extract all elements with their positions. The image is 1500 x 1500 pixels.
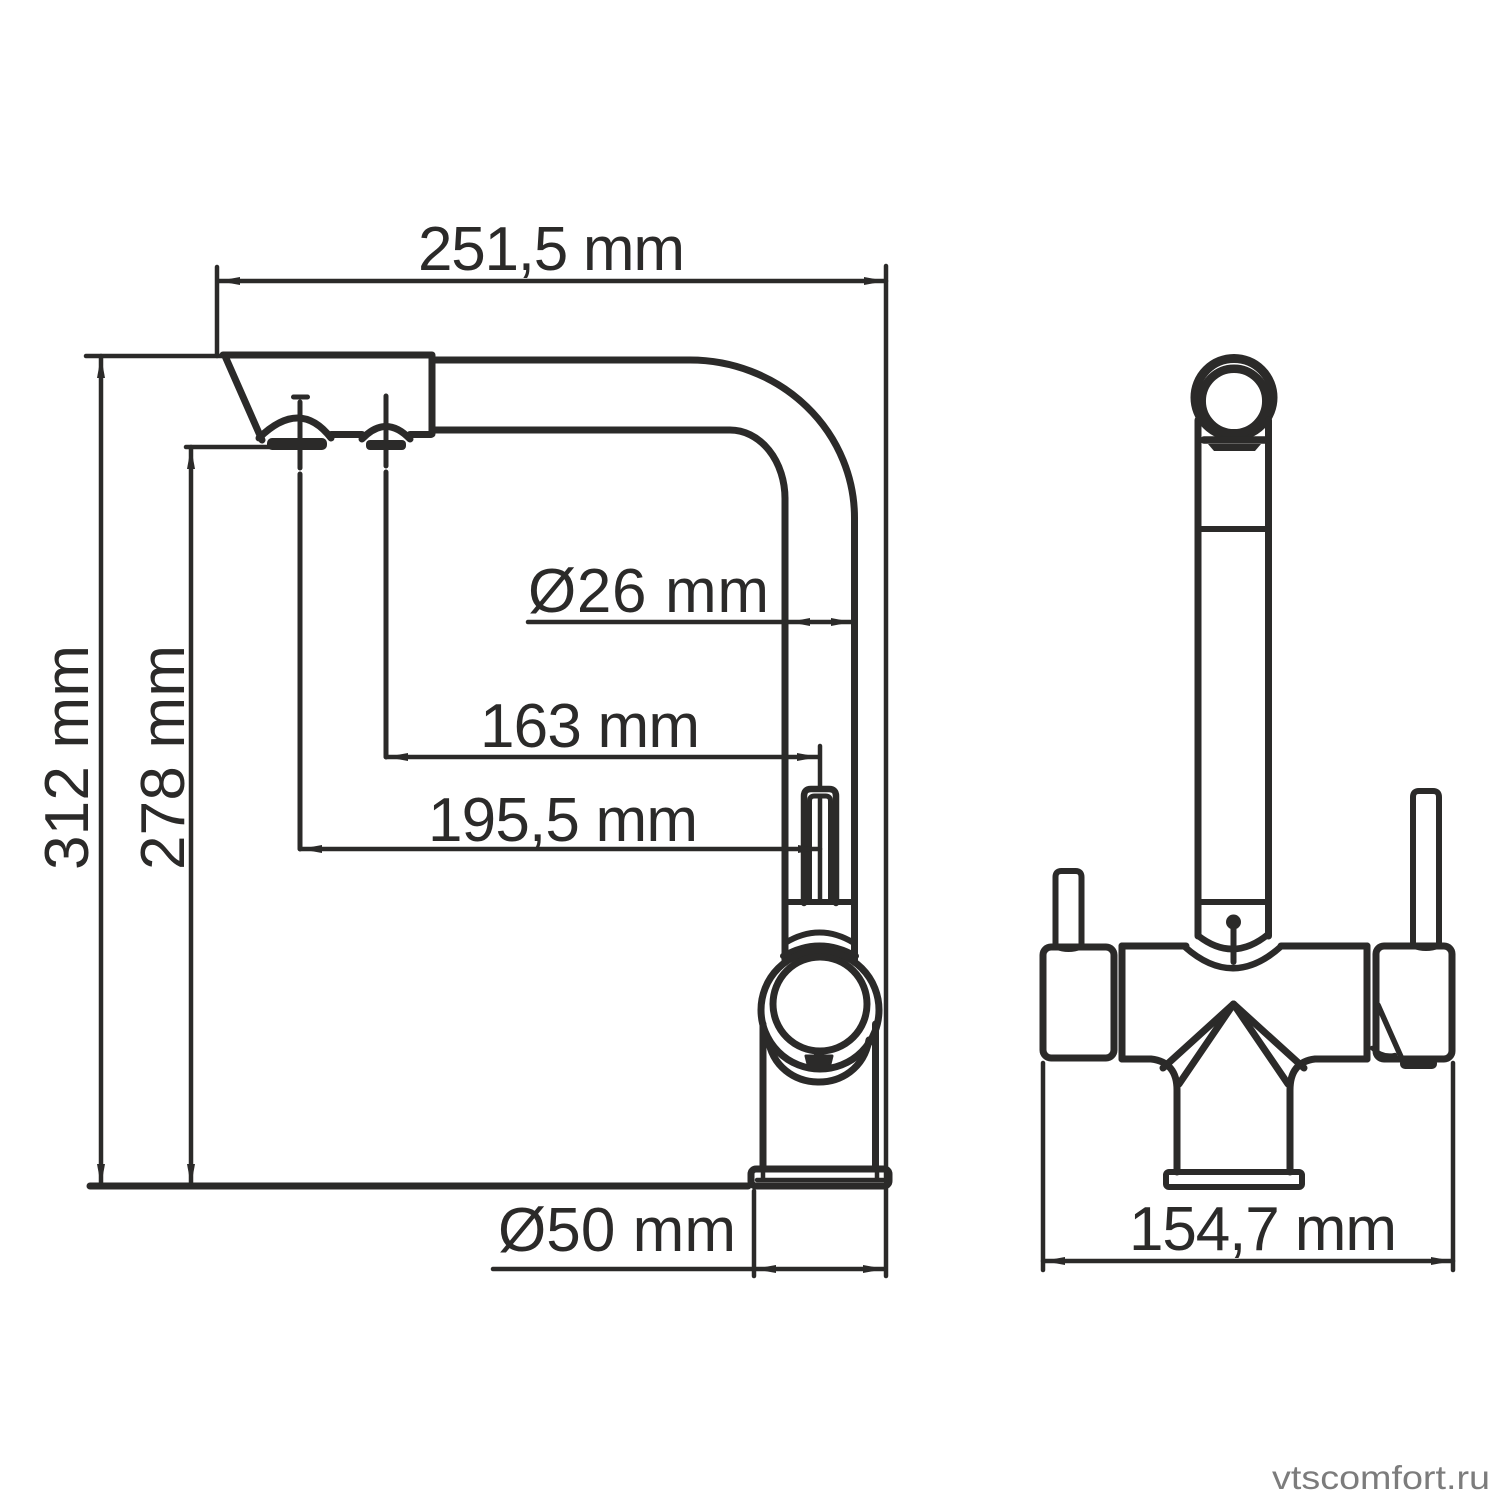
svg-text:vtscomfort.ru: vtscomfort.ru — [1272, 1459, 1490, 1496]
svg-text:154,7 mm: 154,7 mm — [1129, 1195, 1397, 1264]
svg-text:Ø50 mm: Ø50 mm — [498, 1196, 736, 1265]
svg-text:163 mm: 163 mm — [480, 692, 700, 761]
svg-text:Ø26 mm: Ø26 mm — [528, 557, 769, 626]
svg-text:251,5 mm: 251,5 mm — [418, 215, 685, 284]
svg-text:278 mm: 278 mm — [129, 645, 198, 870]
svg-text:312 mm: 312 mm — [33, 645, 102, 870]
svg-text:195,5 mm: 195,5 mm — [428, 786, 698, 855]
